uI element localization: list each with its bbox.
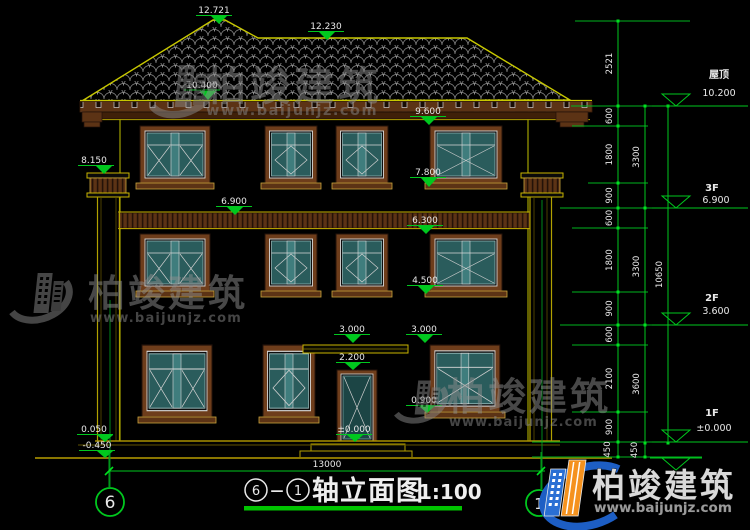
svg-text:屋顶: 屋顶 [709,69,729,81]
dim-3600: 3600 [632,373,642,395]
watermark-top: 柏竣建筑 www.baijunjz.com [152,64,382,119]
level-door-top: 2.200 [336,353,370,370]
window-3f-1 [140,126,210,183]
window-2f-3 [336,234,388,291]
svg-text:www.baijunjz.com: www.baijunjz.com [206,103,378,119]
title-name: 轴立面图 [312,475,424,507]
window-3f-3 [336,126,388,183]
svg-text:3.000: 3.000 [411,325,437,335]
entrance-steps [300,444,412,458]
axis-bubble-6: 6 [96,488,124,516]
svg-text:±0.000: ±0.000 [696,423,731,434]
logo-building-icon [544,460,586,516]
eave-corbel-right [556,112,588,122]
level-flag-1f: 1F ±0.000 [652,408,748,442]
dim-600b: 600 [605,210,615,226]
dim-3300b: 3300 [632,256,642,278]
svg-text:3.600: 3.600 [702,306,729,317]
window-1f-1 [142,345,212,417]
level-chimney: 8.150 [78,156,114,174]
svg-text:6: 6 [105,493,116,513]
svg-text:12.230: 12.230 [310,22,342,32]
belt-course [118,212,530,229]
title-axis-separator: — [271,484,284,499]
dim-900b: 900 [605,300,615,316]
dim-600c: 600 [605,326,615,342]
title-scale: 1:100 [418,480,482,504]
svg-text:6.300: 6.300 [412,216,438,226]
level-flag-roof: 屋顶 10.200 [652,69,748,106]
svg-text:-0.450: -0.450 [82,441,111,451]
svg-text:2.200: 2.200 [339,353,365,363]
level-flag-2f: 2F 3.600 [652,293,748,325]
dim-450b: 450 [630,442,640,458]
brand-logo-color: 柏竣建筑 www.baijunjz.com [536,455,736,530]
brand-url: www.baijunjz.com [594,500,732,516]
svg-text:1F: 1F [705,408,719,419]
dim-600a: 600 [605,108,615,124]
svg-text:9.600: 9.600 [415,107,441,117]
svg-text:7.800: 7.800 [415,168,441,178]
dim-1800b: 1800 [605,249,615,271]
svg-text:0.050: 0.050 [81,425,107,435]
svg-text:6.900: 6.900 [702,195,729,206]
door-canopy [303,345,408,353]
svg-text:±0.000: ±0.000 [337,425,371,435]
level-canopy: 3.000 [334,325,370,343]
watermark-middle-right: 柏竣建筑 www.baijunjz.com [396,375,611,430]
title-axis-from: 6 [252,484,260,499]
dim-1800a: 1800 [605,144,615,166]
svg-text:柏竣建筑: 柏竣建筑 [88,272,248,315]
level-flag-3f: 3F 6.900 [652,183,748,208]
elevation-drawing: 12.721 12.230 10.400 8.150 9.600 7.800 6… [0,0,750,530]
window-1f-2 [263,345,315,417]
window-3f-2 [265,126,317,183]
title-axis-to: 1 [294,484,302,499]
level-plinth: 0.050 [77,425,113,442]
svg-text:柏竣建筑: 柏竣建筑 [447,375,611,419]
level-win-top-2f: 6.300 [407,216,443,234]
level-eave: 9.600 [410,107,446,125]
svg-text:4.500: 4.500 [412,276,438,286]
elevation-drawing-canvas: 12.721 12.230 10.400 8.150 9.600 7.800 6… [0,0,750,530]
svg-text:www.baijunjz.com: www.baijunjz.com [90,311,242,326]
svg-text:10.200: 10.200 [702,88,735,99]
svg-text:2F: 2F [705,293,719,304]
svg-text:3.000: 3.000 [339,325,365,335]
svg-text:12.721: 12.721 [198,6,230,16]
dim-900a: 900 [605,187,615,203]
svg-text:3F: 3F [705,183,719,194]
sills-3f [136,183,507,189]
level-win-top-1f: 3.000 [406,325,442,343]
title-underline [244,506,462,511]
window-2f-2 [265,234,317,291]
svg-text:6.900: 6.900 [221,197,247,207]
dim-450a: 450 [603,441,613,457]
svg-text:8.150: 8.150 [81,156,107,166]
dimension-ticks [617,20,670,459]
overall-width-dim: 13000 [313,460,342,470]
dim-3300a: 3300 [632,146,642,168]
watermark-logo-icon [12,273,69,320]
eave-corbel-left [82,112,102,122]
dim-2521: 2521 [605,53,615,75]
watermark-middle-left: 柏竣建筑 www.baijunjz.com [12,272,248,326]
dim-10650: 10650 [655,261,665,288]
drawing-title: 6 — 1 轴立面图 1:100 [244,475,482,511]
window-2f-4 [430,234,502,291]
svg-text:www.baijunjz.com: www.baijunjz.com [449,415,598,430]
dim-900c: 900 [605,419,615,435]
